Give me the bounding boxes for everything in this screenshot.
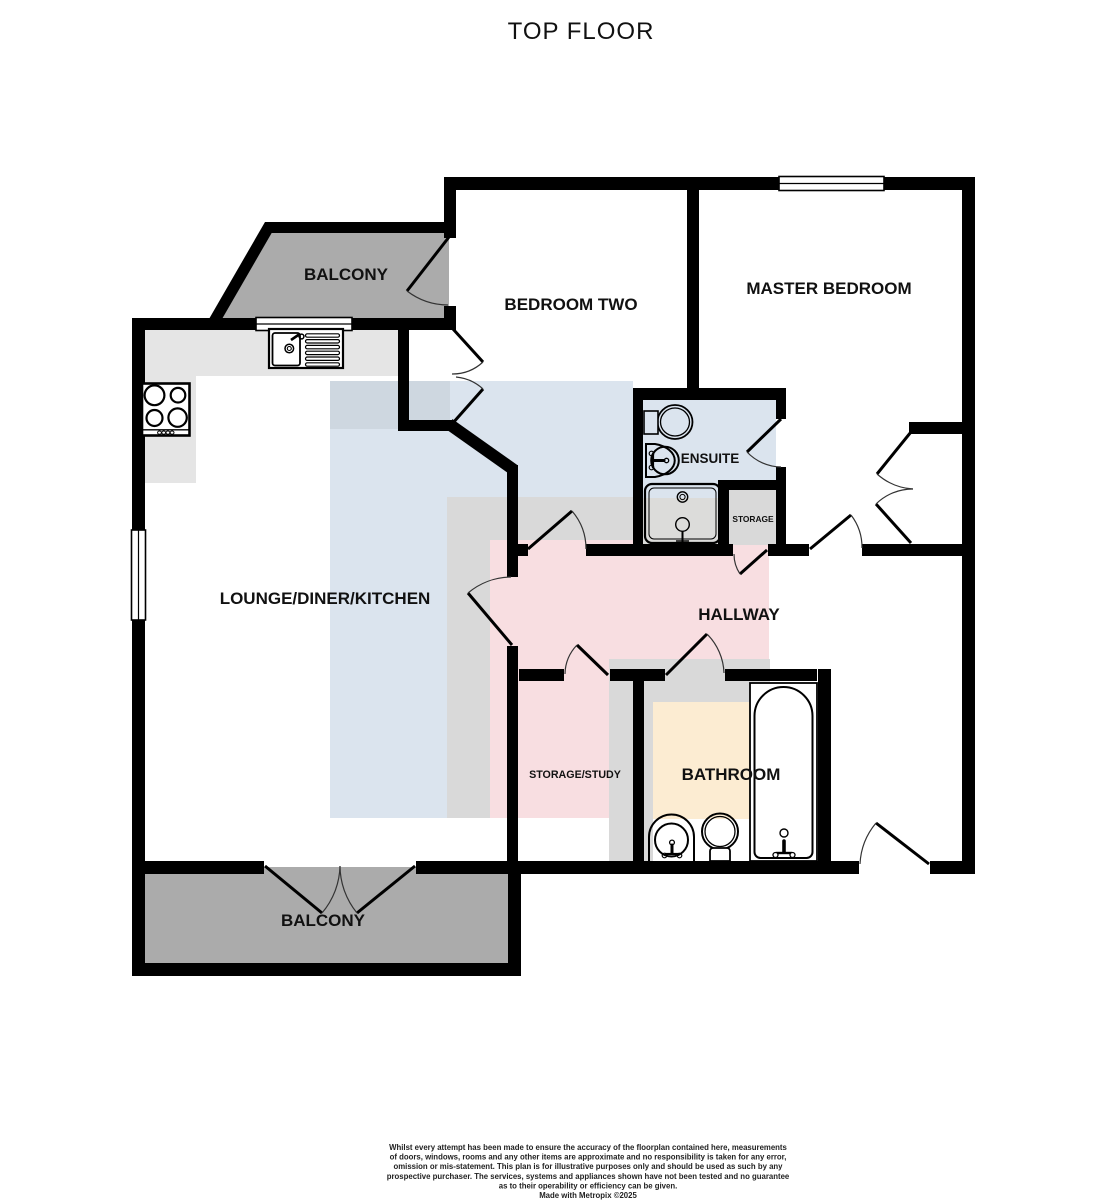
svg-text:BALCONY: BALCONY [304, 265, 389, 284]
svg-text:prospective purchaser. The ser: prospective purchaser. The services, sys… [387, 1172, 790, 1181]
svg-text:MASTER BEDROOM: MASTER BEDROOM [746, 279, 911, 298]
svg-text:HALLWAY: HALLWAY [698, 605, 780, 624]
svg-text:STORAGE: STORAGE [732, 514, 774, 524]
svg-text:BALCONY: BALCONY [281, 911, 366, 930]
svg-text:TOP FLOOR: TOP FLOOR [508, 18, 655, 45]
svg-text:BATHROOM: BATHROOM [682, 765, 781, 784]
svg-text:BEDROOM TWO: BEDROOM TWO [504, 295, 637, 314]
svg-text:LOUNGE/DINER/KITCHEN: LOUNGE/DINER/KITCHEN [220, 589, 431, 608]
svg-text:of doors, windows, rooms and a: of doors, windows, rooms and any other i… [390, 1153, 787, 1162]
svg-text:Made with Metropix ©2025: Made with Metropix ©2025 [539, 1191, 637, 1200]
svg-text:omission or mis-statement. Thi: omission or mis-statement. This plan is … [393, 1162, 783, 1171]
svg-text:ENSUITE: ENSUITE [681, 451, 740, 466]
svg-text:as to their operability or eff: as to their operability or efficiency ca… [499, 1181, 678, 1190]
svg-text:STORAGE/STUDY: STORAGE/STUDY [529, 769, 621, 781]
svg-text:Whilst every attempt has been: Whilst every attempt has been made to en… [389, 1143, 787, 1152]
